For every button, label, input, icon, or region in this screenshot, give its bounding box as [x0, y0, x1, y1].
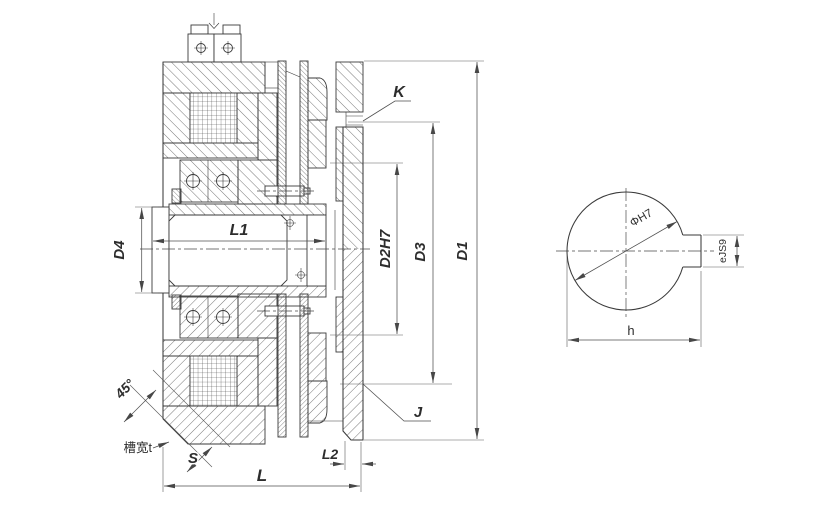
stator-mid-band-top [163, 143, 258, 158]
stator-pole-top [237, 93, 258, 143]
dim-label-l: L [257, 466, 267, 485]
ring-main-top-fill [343, 127, 363, 249]
set-screw-bottom-cross [295, 268, 307, 282]
disc-plate-2-bottom [300, 294, 308, 437]
coil-top [190, 93, 237, 143]
ring-upper [336, 62, 363, 112]
pressure-flange-top-inner [308, 120, 326, 168]
shaft-end-view: ΦH7 eJS9 h [556, 188, 744, 347]
slot-width-leader [153, 442, 169, 448]
disc-plate-1-bottom [278, 294, 286, 437]
stator-coil-wall-left-bottom [163, 356, 190, 406]
coil-bottom [190, 356, 237, 406]
hub-band-top [169, 204, 326, 215]
terminal-block [188, 13, 241, 62]
ring-carrier-wall-bottom [336, 297, 343, 352]
dim-label-j: J [414, 404, 423, 421]
hub-block-bottom [258, 338, 277, 406]
dim-label-d4: D4 [111, 240, 128, 260]
main-section-view [130, 13, 370, 467]
disc-plate-2-top [300, 61, 308, 204]
dim-label-bore-dia: ΦH7 [628, 207, 655, 229]
stator-bottom-band [163, 406, 265, 444]
ring-carrier-wall-top [336, 127, 343, 201]
dim-label-slot-width: 槽宽t [124, 440, 153, 455]
pressure-flange-top-outer [308, 78, 327, 120]
drawing-svg: D4 L1 D2H7 D3 D1 L L2 K J [0, 0, 823, 518]
dim-label-d3: D3 [412, 242, 429, 262]
stator-pole-bottom [237, 356, 258, 406]
dim-label-h: h [627, 323, 634, 338]
dim-label-l2: L2 [322, 446, 339, 462]
technical-drawing-canvas: D4 L1 D2H7 D3 D1 L L2 K J [0, 0, 823, 518]
pressure-flange-bottom-outer [308, 381, 327, 423]
terminal-lug-left [191, 25, 208, 34]
terminal-lug-right [223, 25, 240, 34]
dim-label-l1: L1 [230, 222, 249, 239]
k-leader-line [363, 101, 411, 121]
stator-top-band [163, 62, 265, 93]
hub-column-top [238, 160, 277, 204]
pressure-flange-bottom-inner [308, 333, 326, 381]
dim-label-d2: D2H7 [377, 229, 394, 268]
stator-coil-wall-left-top [163, 93, 190, 143]
dim-label-d1: D1 [454, 241, 471, 260]
hub-sleeve [152, 207, 169, 293]
bore-right-cavity [307, 215, 326, 286]
dim-label-45: 45° [112, 376, 138, 402]
ring-main-bottom-fill [343, 249, 363, 440]
stator-step-top-right [265, 62, 278, 88]
dim-label-k: K [393, 84, 406, 101]
outer-ring [336, 62, 363, 440]
stator-mid-band-bottom [163, 340, 258, 356]
dim-label-s: S [188, 450, 198, 467]
disc-plate-1-top [278, 61, 286, 204]
hub-block-top [258, 93, 277, 160]
dim-label-key-width: eJS9 [717, 239, 729, 263]
shaft-bore [169, 210, 335, 290]
bore-opening [169, 215, 287, 286]
seal-top [172, 189, 181, 203]
disc-link-line-top [286, 71, 300, 77]
